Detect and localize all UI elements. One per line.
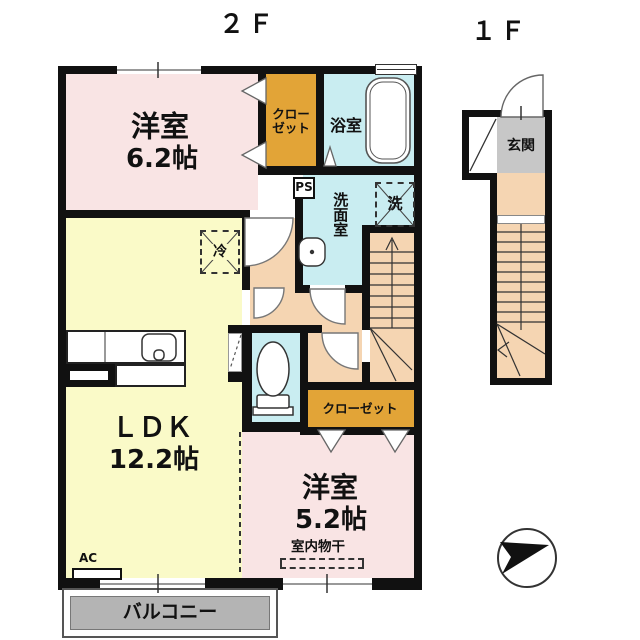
bedroom-b-name: 洋室 xyxy=(302,472,358,504)
wall-outer-left xyxy=(58,66,66,590)
wall-toilet-south xyxy=(242,422,308,432)
wall-ldk-stub xyxy=(228,372,248,382)
room-toilet xyxy=(252,333,300,422)
floor-title-1f: １Ｆ xyxy=(471,18,529,47)
wall-closet-top-west xyxy=(258,74,266,174)
bedroom-a-size: 6.2帖 xyxy=(126,145,198,175)
wall-1f-left-upper xyxy=(462,110,469,180)
indoor-drying-label: 室内物干 xyxy=(291,540,345,556)
shoe-cabinet xyxy=(469,117,497,173)
wall-ldk-east xyxy=(242,210,250,290)
stairs-1f-landing xyxy=(497,215,545,224)
bath-label: 浴室 xyxy=(330,117,362,135)
kitchen-counter xyxy=(66,330,186,364)
wall-closet-bottom-south xyxy=(300,427,414,435)
closet-top-label: クロー ゼット xyxy=(272,108,310,137)
window-top-bath xyxy=(375,64,417,75)
wall-bath-south xyxy=(258,166,414,175)
wall-outer-right xyxy=(414,66,422,590)
ldk-size: 12.2帖 xyxy=(109,446,199,476)
washroom-label: 洗面室 xyxy=(331,192,348,237)
bedroom-b-size: 5.2帖 xyxy=(295,506,367,536)
wall-washroom-south-b xyxy=(345,285,362,293)
window-top-bedroom-a xyxy=(117,66,201,74)
wall-closet-bath-divider xyxy=(316,74,324,174)
compass-icon xyxy=(498,529,556,587)
balcony-label: バルコニー xyxy=(123,602,218,624)
wall-bedroom-a-south xyxy=(58,210,245,218)
wall-1f-right xyxy=(545,110,552,385)
stairs-1f-area xyxy=(497,173,545,378)
kitchen-base-slot xyxy=(70,371,108,380)
wall-stairs-west-stub xyxy=(362,362,370,382)
wall-closet-bottom-north xyxy=(300,382,414,390)
stairs-2f-area xyxy=(370,233,414,382)
wall-1f-stairs-west xyxy=(490,173,497,385)
wall-washroom-west xyxy=(295,197,303,293)
fridge-label: 冷 xyxy=(212,244,228,260)
wall-outer-top xyxy=(58,66,422,74)
pipe-space-label: PS xyxy=(295,181,312,195)
indoor-drying-box xyxy=(280,558,364,569)
hallway-lower xyxy=(303,293,362,382)
wall-1f-top xyxy=(462,110,552,117)
window-bottom-bedroom-b xyxy=(283,578,372,590)
bedroom-a-name: 洋室 xyxy=(131,110,189,143)
wall-1f-bottom xyxy=(490,378,552,385)
toilet-door-strip xyxy=(228,333,242,372)
floor-title-2f: ２Ｆ xyxy=(219,11,277,40)
kitchen-counter-lower xyxy=(115,364,186,387)
air-con-box xyxy=(72,568,122,580)
entrance-label: 玄関 xyxy=(507,138,535,154)
wall-washroom-south-a xyxy=(295,285,310,293)
air-con-label: AC xyxy=(79,552,97,566)
ldk-name: ＬＤＫ xyxy=(112,412,193,443)
floor-plan: ２Ｆ １Ｆ 洋室 6.2帖 クロー ゼット 浴室 PS 洗面室 洗 冷 ＬＤＫ … xyxy=(0,0,640,640)
washer-label: 洗 xyxy=(387,195,402,212)
closet-bottom-label: クローゼット xyxy=(322,402,397,416)
wall-stairs-west xyxy=(362,225,370,330)
